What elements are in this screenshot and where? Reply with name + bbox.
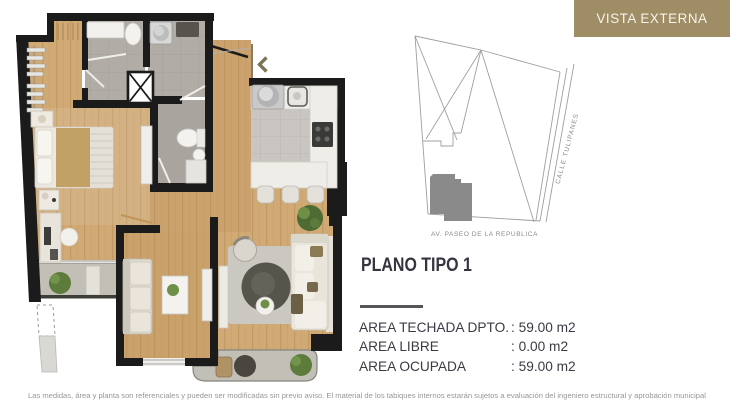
- svg-text:AV. PASEO DE LA REPUBLICA: AV. PASEO DE LA REPUBLICA: [431, 231, 538, 238]
